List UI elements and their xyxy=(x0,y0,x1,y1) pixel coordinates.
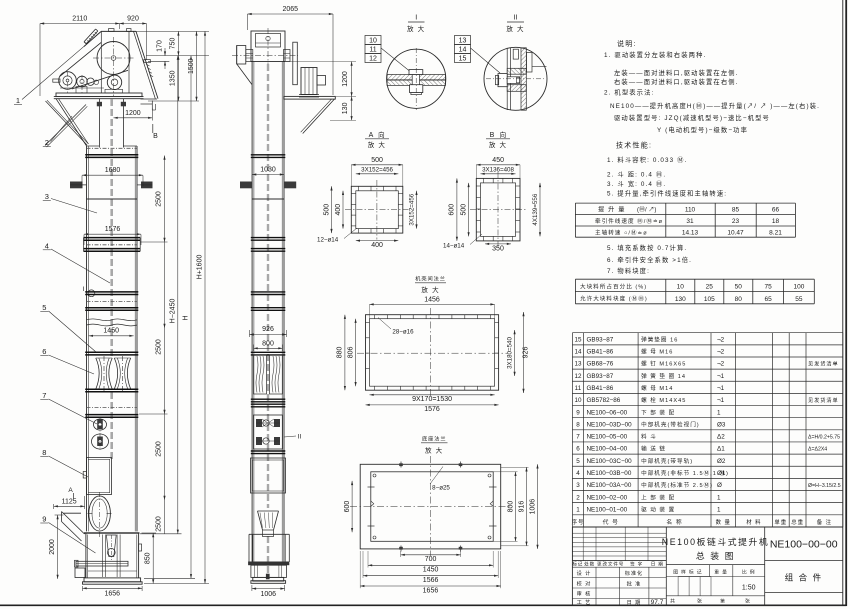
svg-text:¬2: ¬2 xyxy=(717,336,725,343)
svg-text:916: 916 xyxy=(518,501,525,513)
svg-text:1500: 1500 xyxy=(188,58,195,74)
svg-text:1680: 1680 xyxy=(105,167,121,174)
svg-text:¬2: ¬2 xyxy=(717,361,725,368)
svg-text:H−2450: H−2450 xyxy=(169,299,176,324)
svg-text:12: 12 xyxy=(574,373,582,380)
svg-text:Ø=H−3.15/2.5: Ø=H−3.15/2.5 xyxy=(808,483,841,489)
svg-text:日 期: 日 期 xyxy=(627,599,642,606)
svg-text:1125: 1125 xyxy=(62,498,77,505)
svg-text:标准化: 标准化 xyxy=(625,569,643,577)
svg-text:3X152=456: 3X152=456 xyxy=(361,166,393,173)
svg-text:2: 2 xyxy=(576,494,580,501)
svg-text:66: 66 xyxy=(772,207,780,214)
svg-text:80: 80 xyxy=(735,296,743,303)
svg-text:8: 8 xyxy=(42,448,46,457)
svg-text:放 大: 放 大 xyxy=(368,140,386,149)
svg-text:II: II xyxy=(514,15,518,22)
svg-text:¬1: ¬1 xyxy=(717,397,725,404)
svg-text:600: 600 xyxy=(449,204,456,216)
svg-text:A: A xyxy=(68,487,73,494)
svg-text:6: 6 xyxy=(42,347,46,356)
svg-text:NE100−03C−00: NE100−03C−00 xyxy=(587,458,633,465)
svg-text:NE100——提升机高度H(Ⓜ)——提升量(↗/ ↗ )—: NE100——提升机高度H(Ⓜ)——提升量(↗/ ↗ )——左(右)装. xyxy=(610,101,820,110)
svg-text:NE100−03B−00: NE100−03B−00 xyxy=(587,470,632,477)
svg-text:75: 75 xyxy=(765,284,773,291)
svg-text:1030: 1030 xyxy=(260,167,276,174)
svg-text:170: 170 xyxy=(157,40,164,52)
svg-text:500: 500 xyxy=(323,204,330,216)
svg-text:2: 2 xyxy=(45,138,49,147)
svg-text:130: 130 xyxy=(675,296,686,303)
svg-text:4: 4 xyxy=(576,470,580,477)
svg-text:左装——面对进料口,驱动装置在左侧.: 左装——面对进料口,驱动装置在左侧. xyxy=(614,68,739,77)
svg-text:8.21: 8.21 xyxy=(769,230,782,237)
svg-text:15: 15 xyxy=(574,336,582,343)
svg-text:5. 提升量,牵引件线速度和主轴转速:: 5. 提升量,牵引件线速度和主轴转速: xyxy=(607,188,727,197)
svg-text:I: I xyxy=(83,286,85,293)
svg-text:重 量: 重 量 xyxy=(714,569,728,576)
svg-text:1576: 1576 xyxy=(105,226,121,233)
svg-text:1006: 1006 xyxy=(529,499,536,515)
svg-text:右装——面对进料口,驱动装置在右侧.: 右装——面对进料口,驱动装置在右侧. xyxy=(614,77,739,86)
svg-text:Ø2: Ø2 xyxy=(717,458,726,465)
svg-text:见发货清单: 见发货清单 xyxy=(808,360,839,368)
svg-text:技术性能:: 技术性能: xyxy=(616,141,652,150)
svg-text:1656: 1656 xyxy=(105,591,121,598)
svg-text:1: 1 xyxy=(717,494,721,501)
svg-text:弹 簧 垫 圈 14: 弹 簧 垫 圈 14 xyxy=(641,372,686,380)
svg-text:批 准: 批 准 xyxy=(627,580,642,588)
svg-text:GB93−87: GB93−87 xyxy=(587,336,614,343)
svg-text:14−ø14: 14−ø14 xyxy=(443,243,465,250)
svg-text:1200: 1200 xyxy=(125,110,141,117)
svg-text:5. 填充系数按 0.7计算.: 5. 填充系数按 0.7计算. xyxy=(607,243,687,252)
svg-text:第: 第 xyxy=(720,598,726,605)
svg-text:10.47: 10.47 xyxy=(727,230,744,237)
svg-text:2. 斗 距: 0.4 Ⓜ.: 2. 斗 距: 0.4 Ⓜ. xyxy=(607,171,666,179)
svg-text:105: 105 xyxy=(704,296,715,303)
svg-text:H: H xyxy=(183,315,190,320)
svg-text:3. 斗 宽: 0.4 Ⓜ.: 3. 斗 宽: 0.4 Ⓜ. xyxy=(607,179,666,188)
svg-text:3: 3 xyxy=(45,192,49,201)
svg-text:130: 130 xyxy=(342,102,349,114)
svg-text:18: 18 xyxy=(772,218,780,225)
svg-text:500: 500 xyxy=(371,157,383,164)
svg-text:Ø1: Ø1 xyxy=(717,470,726,477)
svg-text:850: 850 xyxy=(145,552,152,564)
svg-text:A: A xyxy=(369,132,374,139)
svg-text:II: II xyxy=(298,434,302,441)
svg-text:2065: 2065 xyxy=(282,6,298,13)
svg-text:Ø3: Ø3 xyxy=(717,421,726,428)
svg-text:1576: 1576 xyxy=(424,406,440,413)
svg-text:450: 450 xyxy=(492,157,504,164)
svg-text:提 升 量: 提 升 量 xyxy=(598,206,626,214)
svg-text:Ø: Ø xyxy=(717,482,722,489)
svg-text:13: 13 xyxy=(574,361,582,368)
svg-text:2500: 2500 xyxy=(156,191,163,207)
svg-text:料 斗: 料 斗 xyxy=(641,433,657,441)
svg-text:400: 400 xyxy=(335,204,342,216)
svg-text:7. 物料块度:: 7. 物料块度: xyxy=(607,266,650,275)
svg-text:14.13: 14.13 xyxy=(682,230,699,237)
svg-text:1: 1 xyxy=(717,506,721,513)
svg-text:B: B xyxy=(490,132,495,139)
svg-text:共: 共 xyxy=(670,598,676,605)
svg-text:9X170=1530: 9X170=1530 xyxy=(412,396,452,403)
svg-text:3X136=408: 3X136=408 xyxy=(482,166,514,173)
svg-text:GB41−86: GB41−86 xyxy=(587,385,614,392)
svg-text:12−ø14: 12−ø14 xyxy=(317,237,339,244)
svg-text:数 量: 数 量 xyxy=(716,518,731,526)
svg-text:张: 张 xyxy=(697,598,703,605)
svg-text:800: 800 xyxy=(262,340,274,347)
svg-text:4X139=556: 4X139=556 xyxy=(532,193,539,225)
svg-text:总重: 总重 xyxy=(791,518,804,526)
svg-text:中部机壳(带导轨): 中部机壳(带导轨) xyxy=(641,457,693,465)
svg-text:审 核: 审 核 xyxy=(577,590,592,598)
svg-text:3: 3 xyxy=(576,482,580,489)
svg-text:GB41−86: GB41−86 xyxy=(587,349,614,356)
svg-text:NE100−05−00: NE100−05−00 xyxy=(587,434,628,441)
svg-text:50: 50 xyxy=(735,284,743,291)
svg-text:螺 钉 M16X65: 螺 钉 M16X65 xyxy=(641,360,686,368)
svg-text:350: 350 xyxy=(492,245,504,252)
svg-text:750: 750 xyxy=(170,38,177,50)
svg-text:名 称: 名 称 xyxy=(666,518,682,526)
svg-text:GB68−76: GB68−76 xyxy=(587,361,614,368)
svg-text:9: 9 xyxy=(42,515,46,524)
svg-text:3X180=540: 3X180=540 xyxy=(506,337,513,369)
svg-text:¬1: ¬1 xyxy=(717,385,725,392)
svg-text:序号: 序号 xyxy=(572,518,585,526)
svg-text:1: 1 xyxy=(717,409,721,416)
svg-text:底座法兰: 底座法兰 xyxy=(422,435,447,443)
svg-text:驱动装置型号: JZQ(减速机型号)−速比−机型号: 驱动装置型号: JZQ(减速机型号)−速比−机型号 xyxy=(614,113,770,122)
svg-text:备 注: 备 注 xyxy=(817,518,832,526)
svg-text:H+1600: H+1600 xyxy=(197,255,204,280)
svg-text:10: 10 xyxy=(574,397,582,404)
svg-text:校 对: 校 对 xyxy=(577,580,592,588)
svg-text:8−ø25: 8−ø25 xyxy=(432,485,450,492)
svg-text:组 合 件: 组 合 件 xyxy=(785,573,823,583)
svg-text:11: 11 xyxy=(575,385,582,392)
svg-text:400: 400 xyxy=(371,242,383,249)
svg-text:牵引件线速度 Ⓜ/Ⓜ≐ø: 牵引件线速度 Ⓜ/Ⓜ≐ø xyxy=(595,217,663,225)
svg-text:2. 机型表示法:: 2. 机型表示法: xyxy=(604,88,654,97)
svg-text:代 号: 代 号 xyxy=(603,518,619,526)
svg-text:GB93−87: GB93−87 xyxy=(587,373,614,380)
svg-text:11: 11 xyxy=(369,47,376,54)
svg-text:机壳间法兰: 机壳间法兰 xyxy=(415,275,446,283)
svg-text:1. 驱动装置分左装和右装两种.: 1. 驱动装置分左装和右装两种. xyxy=(604,50,706,59)
svg-text:允许大块料块度 (ⓂⓂ): 允许大块料块度 (ⓂⓂ) xyxy=(580,295,648,303)
svg-text:500: 500 xyxy=(460,204,467,216)
svg-text:NE100−06−00: NE100−06−00 xyxy=(587,409,628,416)
svg-text:1. 料斗容积: 0.033 Ⓜ.: 1. 料斗容积: 0.033 Ⓜ. xyxy=(607,155,687,164)
svg-text:14: 14 xyxy=(459,47,467,54)
svg-text:放 大: 放 大 xyxy=(407,24,425,33)
svg-text:中部机壳(非标节 1.5Ⓜ,1 Ⓜ): 中部机壳(非标节 1.5Ⓜ,1 Ⓜ) xyxy=(641,469,729,477)
svg-text:说明:: 说明: xyxy=(617,39,637,48)
svg-text:1: 1 xyxy=(576,506,580,513)
svg-text:上 部 装 配: 上 部 装 配 xyxy=(641,493,675,501)
svg-text:向: 向 xyxy=(500,130,508,139)
svg-text:下 部 装 配: 下 部 装 配 xyxy=(641,408,675,416)
svg-text:926: 926 xyxy=(523,347,530,359)
svg-text:1456: 1456 xyxy=(424,297,440,304)
svg-text:2110: 2110 xyxy=(72,16,87,23)
svg-text:张: 张 xyxy=(745,598,751,605)
svg-text:1350: 1350 xyxy=(170,70,177,86)
svg-text:弹簧垫圈 16: 弹簧垫圈 16 xyxy=(641,335,678,343)
svg-text:6: 6 xyxy=(576,446,580,453)
svg-text:NE100−00−00: NE100−00−00 xyxy=(770,539,838,551)
svg-text:2500: 2500 xyxy=(156,339,163,355)
svg-text:920: 920 xyxy=(127,16,139,23)
svg-text:输 送 链: 输 送 链 xyxy=(641,445,666,453)
svg-text:放 大: 放 大 xyxy=(506,24,524,33)
svg-text:NE100−04−00: NE100−04−00 xyxy=(587,446,628,453)
svg-text:28−ø16: 28−ø16 xyxy=(392,329,414,336)
svg-text:GB5782−86: GB5782−86 xyxy=(587,397,621,404)
svg-text:大块料所占百分比 (%): 大块料所占百分比 (%) xyxy=(580,282,647,290)
svg-text:13: 13 xyxy=(459,38,467,45)
svg-text:工 艺: 工 艺 xyxy=(577,599,592,606)
svg-text:9: 9 xyxy=(576,409,580,416)
svg-text:单重: 单重 xyxy=(774,518,787,526)
svg-text:600: 600 xyxy=(344,501,351,513)
svg-text:螺 母 M16: 螺 母 M16 xyxy=(641,348,673,356)
svg-text:见发货清单: 见发货清单 xyxy=(808,396,839,404)
svg-text:2500: 2500 xyxy=(156,441,163,457)
svg-text:25: 25 xyxy=(706,284,714,291)
svg-text:Δ=H/0.2+5.75: Δ=H/0.2+5.75 xyxy=(808,435,840,441)
svg-text:中部机壳(标准节 2.5Ⓜ): 中部机壳(标准节 2.5Ⓜ) xyxy=(641,481,713,489)
svg-text:8: 8 xyxy=(576,421,580,428)
svg-text:向: 向 xyxy=(378,130,386,139)
svg-text:31: 31 xyxy=(686,218,694,225)
svg-text:NE100−01−00: NE100−01−00 xyxy=(587,506,628,513)
svg-text:Δ1: Δ1 xyxy=(717,446,725,453)
svg-text:15: 15 xyxy=(459,56,467,63)
svg-text:螺 栓 M14X45: 螺 栓 M14X45 xyxy=(641,396,686,404)
svg-text:10: 10 xyxy=(369,38,377,45)
svg-text:放 大: 放 大 xyxy=(421,285,439,294)
svg-text:1: 1 xyxy=(16,96,20,105)
svg-text:标记: 标记 xyxy=(572,561,583,568)
svg-text:85: 85 xyxy=(732,207,740,214)
svg-text:110: 110 xyxy=(685,207,696,214)
svg-text:1:50: 1:50 xyxy=(742,585,756,592)
svg-text:(Ⓜ/ ↗): (Ⓜ/ ↗) xyxy=(637,206,656,214)
svg-text:比 例: 比 例 xyxy=(742,569,756,576)
svg-text:7: 7 xyxy=(576,434,580,441)
svg-text:I: I xyxy=(415,15,417,22)
svg-text:¬2: ¬2 xyxy=(717,349,725,356)
svg-text:23: 23 xyxy=(732,218,740,225)
svg-text:Δ=Δ2X4: Δ=Δ2X4 xyxy=(808,447,827,453)
svg-text:B: B xyxy=(153,133,158,140)
svg-text:Δ2: Δ2 xyxy=(717,434,725,441)
svg-text:螺 母 M14: 螺 母 M14 xyxy=(641,384,673,392)
svg-text:驱 动 装 置: 驱 动 装 置 xyxy=(641,505,675,513)
svg-text:材 料: 材 料 xyxy=(746,518,761,526)
svg-text:¬1: ¬1 xyxy=(717,373,725,380)
svg-text:55: 55 xyxy=(795,296,803,303)
svg-text:Y (电动机型号)−级数−功率: Y (电动机型号)−级数−功率 xyxy=(657,125,748,134)
svg-text:1656: 1656 xyxy=(423,587,439,594)
svg-text:700: 700 xyxy=(425,556,437,563)
svg-text:处数: 处数 xyxy=(584,561,595,568)
svg-text:1566: 1566 xyxy=(423,577,439,584)
svg-text:NE100板链斗式提升机: NE100板链斗式提升机 xyxy=(662,536,769,547)
svg-text:1006: 1006 xyxy=(260,591,276,598)
svg-text:放 大: 放 大 xyxy=(489,140,507,149)
svg-text:更改文件号: 更改文件号 xyxy=(597,561,624,568)
svg-text:主轴转速 ○/Ⓜ≐ø: 主轴转速 ○/Ⓜ≐ø xyxy=(595,228,648,236)
svg-text:图 样 标 记: 图 样 标 记 xyxy=(673,569,702,576)
svg-text:放 大: 放 大 xyxy=(425,446,443,455)
svg-text:NE100−03D−00: NE100−03D−00 xyxy=(587,421,633,428)
svg-text:5: 5 xyxy=(42,303,46,312)
svg-text:设 计: 设 计 xyxy=(577,569,592,577)
svg-text:NE100−03A−00: NE100−03A−00 xyxy=(587,482,632,489)
svg-text:NE100−02−00: NE100−02−00 xyxy=(587,494,628,501)
svg-text:14: 14 xyxy=(574,349,582,356)
svg-text:6. 牵引件安全系数 >1倍.: 6. 牵引件安全系数 >1倍. xyxy=(607,255,692,264)
svg-text:签 字: 签 字 xyxy=(630,561,643,567)
svg-text:10: 10 xyxy=(677,284,685,291)
svg-text:总 装 图: 总 装 图 xyxy=(696,550,735,561)
svg-text:12: 12 xyxy=(369,56,377,63)
svg-text:5: 5 xyxy=(576,458,580,465)
svg-text:4: 4 xyxy=(45,241,49,250)
svg-text:800: 800 xyxy=(507,501,514,513)
svg-text:2500: 2500 xyxy=(156,516,163,532)
svg-text:1450: 1450 xyxy=(103,327,119,334)
svg-text:97.7: 97.7 xyxy=(651,599,664,606)
svg-text:926: 926 xyxy=(262,326,274,333)
svg-text:2000: 2000 xyxy=(49,539,56,555)
svg-text:3X152=456: 3X152=456 xyxy=(408,193,415,225)
svg-text:1450: 1450 xyxy=(423,567,439,574)
svg-text:100: 100 xyxy=(793,284,804,291)
svg-text:65: 65 xyxy=(765,296,773,303)
svg-text:880: 880 xyxy=(337,347,344,359)
svg-text:7: 7 xyxy=(42,391,46,400)
svg-text:中部机壳(带检视门): 中部机壳(带检视门) xyxy=(641,420,700,428)
svg-text:1200: 1200 xyxy=(342,71,349,87)
svg-text:806: 806 xyxy=(347,347,354,359)
